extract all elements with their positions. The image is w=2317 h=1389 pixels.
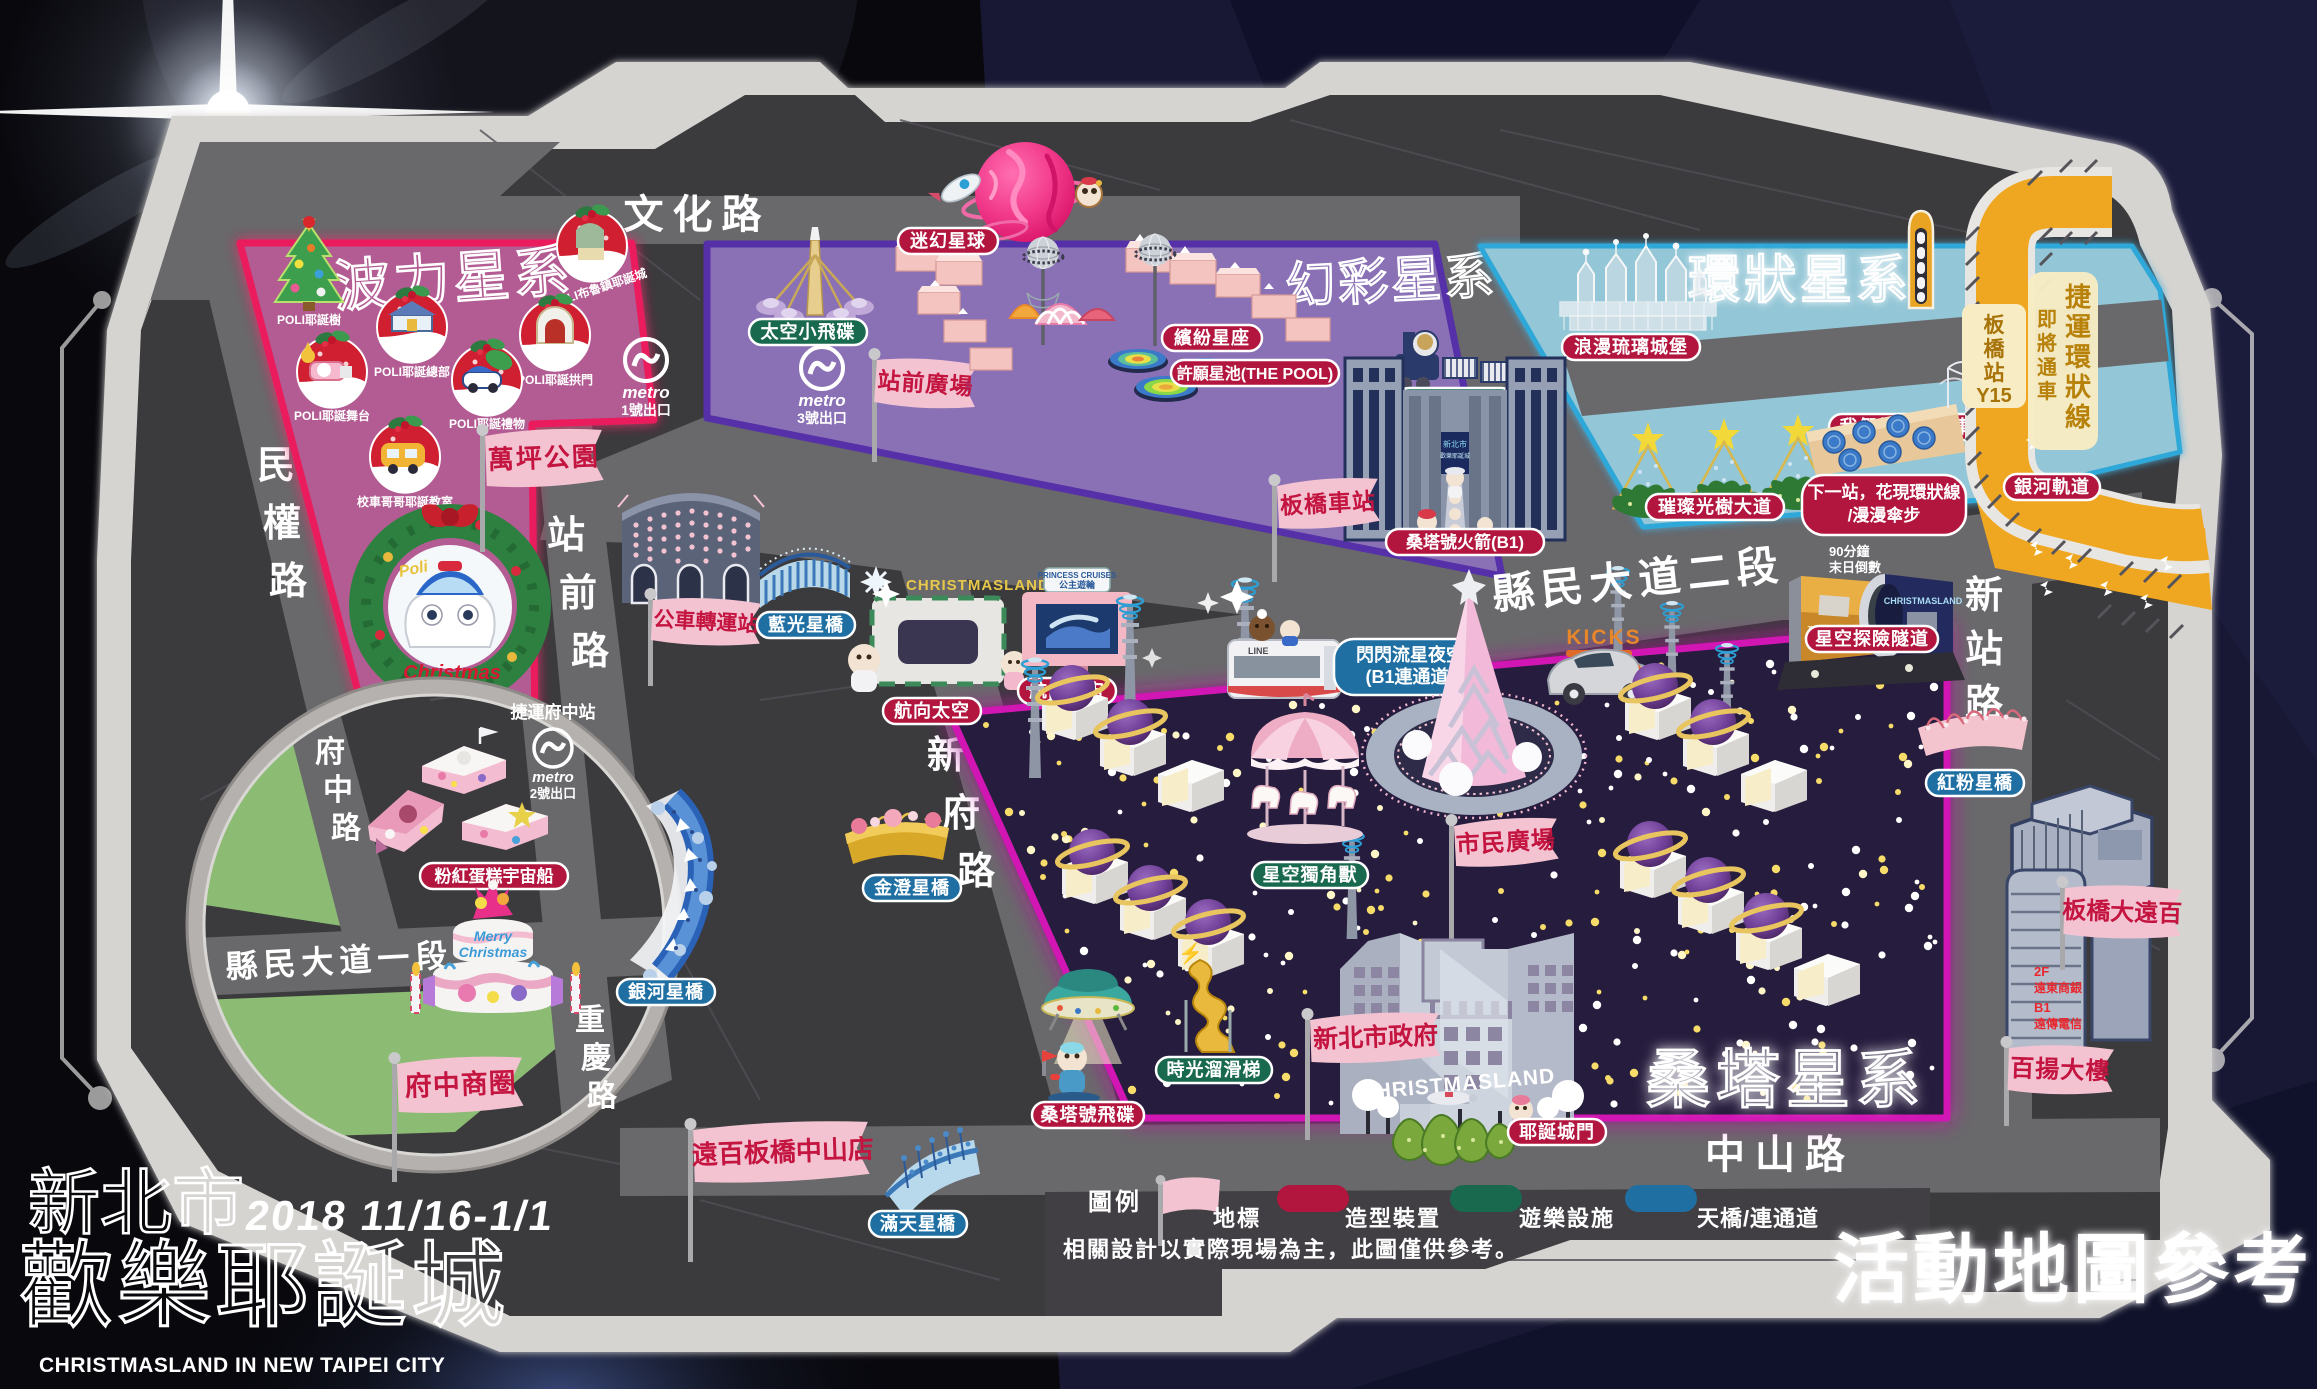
svg-text:相關設計以實際現場為主，此圖僅供參考。: 相關設計以實際現場為主，此圖僅供參考。 [1063, 1237, 1519, 1262]
svg-text:府中商圈: 府中商圈 [404, 1067, 517, 1102]
svg-text:POLI耶誕拱門: POLI耶誕拱門 [517, 372, 593, 387]
svg-text:浪漫琉璃城堡: 浪漫琉璃城堡 [1574, 336, 1688, 357]
svg-text:航向太空: 航向太空 [894, 700, 970, 721]
svg-text:2018 11/16-1/1: 2018 11/16-1/1 [243, 1192, 558, 1239]
svg-text:遠東商銀: 遠東商銀 [2034, 980, 2082, 995]
svg-text:Merry: Merry [474, 928, 513, 944]
svg-text:板: 板 [1984, 314, 2006, 337]
svg-text:璀璨光樹大道: 璀璨光樹大道 [1658, 496, 1772, 517]
svg-text:環狀星系: 環狀星系 [1688, 252, 1912, 310]
svg-text:LINE: LINE [1248, 646, 1269, 656]
svg-text:PRINCESS CRUISES: PRINCESS CRUISES [1038, 571, 1117, 580]
svg-text:百揚大樓: 百揚大樓 [2010, 1054, 2111, 1085]
svg-text:中山路: 中山路 [1705, 1133, 1855, 1177]
svg-text:許願星池(THE POOL): 許願星池(THE POOL) [1177, 364, 1333, 383]
svg-text:萬坪公園: 萬坪公園 [487, 441, 600, 475]
svg-text:1號出口: 1號出口 [621, 402, 671, 418]
svg-text:KICKS: KICKS [1566, 626, 1641, 649]
svg-text:橋: 橋 [1984, 337, 2006, 361]
svg-text:太空小飛碟: 太空小飛碟 [761, 321, 856, 342]
svg-text:POLI耶誕舞台: POLI耶誕舞台 [294, 408, 370, 423]
svg-text:地標: 地標 [1213, 1206, 1261, 1231]
svg-text:遊樂設施: 遊樂設施 [1519, 1206, 1615, 1231]
svg-text:銀河軌道: 銀河軌道 [2014, 476, 2090, 497]
svg-text:文化路: 文化路 [624, 193, 771, 237]
svg-text:星空探險隧道: 星空探險隧道 [1815, 628, 1929, 649]
svg-text:歡樂耶誕城: 歡樂耶誕城 [19, 1233, 509, 1338]
svg-text:新北市: 新北市 [1443, 439, 1467, 449]
svg-text:新北市政府: 新北市政府 [1313, 1021, 1439, 1054]
svg-text:時光溜滑梯: 時光溜滑梯 [1167, 1059, 1262, 1080]
svg-text:⚡: ⚡ [1178, 941, 1203, 965]
svg-text:2F: 2F [2034, 964, 2049, 979]
svg-text:市民廣場: 市民廣場 [1455, 826, 1556, 859]
svg-text:滿天星橋: 滿天星橋 [880, 1213, 956, 1234]
svg-text:板橋車站: 板橋車站 [1279, 488, 1376, 519]
svg-text:藍光星橋: 藍光星橋 [768, 614, 844, 635]
svg-text:90分鐘: 90分鐘 [1829, 544, 1869, 559]
svg-text:CHRISTMASLAND: CHRISTMASLAND [1884, 596, 1963, 606]
svg-text:星空獨角獸: 星空獨角獸 [1263, 864, 1358, 885]
svg-text:迷幻星球: 迷幻星球 [909, 230, 986, 251]
svg-text:板橋大遠百: 板橋大遠百 [2062, 897, 2183, 928]
svg-text:遠百板橋中山店: 遠百板橋中山店 [691, 1134, 874, 1170]
svg-text:桑塔號飛碟: 桑塔號飛碟 [1041, 1104, 1136, 1125]
svg-text:POLI耶誕總部: POLI耶誕總部 [374, 364, 450, 379]
svg-text:天橋/連通道: 天橋/連通道 [1697, 1206, 1819, 1231]
svg-text:metro: metro [532, 769, 574, 786]
svg-text:銀河星橋: 銀河星橋 [628, 981, 704, 1002]
svg-text:Y15: Y15 [1976, 385, 2012, 407]
svg-text:遠傳電信: 遠傳電信 [2034, 1016, 2082, 1031]
svg-text:站: 站 [1984, 361, 2005, 385]
svg-text:桑塔星系: 桑塔星系 [1646, 1044, 1926, 1116]
svg-text:新北市: 新北市 [28, 1164, 244, 1244]
svg-text:/漫漫傘步: /漫漫傘步 [1848, 505, 1921, 525]
svg-text:桑塔號火箭(B1): 桑塔號火箭(B1) [1406, 532, 1524, 552]
svg-text:歡樂耶誕城: 歡樂耶誕城 [1440, 452, 1470, 460]
svg-text:紅粉星橋: 紅粉星橋 [1937, 772, 2013, 793]
svg-text:CHRISTMASLAND: CHRISTMASLAND [906, 577, 1050, 594]
svg-text:下一站，花現環狀線: 下一站，花現環狀線 [1808, 482, 1961, 502]
svg-text:(B1連通道): (B1連通道) [1366, 666, 1455, 687]
svg-text:B1: B1 [2034, 1000, 2051, 1015]
svg-text:閃閃流星夜空: 閃閃流星夜空 [1356, 644, 1464, 665]
svg-text:3號出口: 3號出口 [797, 410, 847, 426]
svg-text:POLI耶誕樹: POLI耶誕樹 [277, 312, 341, 327]
svg-text:捷運環狀線: 捷運環狀線 [2065, 282, 2092, 432]
svg-text:幻彩星系: 幻彩星系 [1284, 248, 1499, 315]
svg-text:2號出口: 2號出口 [530, 786, 576, 801]
svg-text:末日倒數: 末日倒數 [1828, 560, 1881, 575]
svg-text:圖例: 圖例 [1088, 1189, 1142, 1216]
svg-text:metro: metro [798, 391, 845, 410]
svg-text:金澄星橋: 金澄星橋 [873, 877, 950, 898]
svg-text:CHRISTMASLAND IN NEW TAIPEI CI: CHRISTMASLAND IN NEW TAIPEI CITY [39, 1354, 445, 1377]
svg-text:耶誕城門: 耶誕城門 [1519, 1121, 1595, 1142]
svg-text:繽紛星座: 繽紛星座 [1174, 327, 1250, 348]
svg-text:Christmas: Christmas [459, 944, 528, 960]
svg-text:捷運府中站: 捷運府中站 [511, 702, 596, 722]
svg-text:造型裝置: 造型裝置 [1345, 1206, 1441, 1231]
svg-text:新站路: 新站路 [1965, 575, 2004, 725]
svg-text:活動地圖參考: 活動地圖參考 [1833, 1228, 2313, 1313]
svg-text:公主遊輪: 公主遊輪 [1059, 579, 1096, 590]
svg-text:metro: metro [622, 383, 669, 402]
